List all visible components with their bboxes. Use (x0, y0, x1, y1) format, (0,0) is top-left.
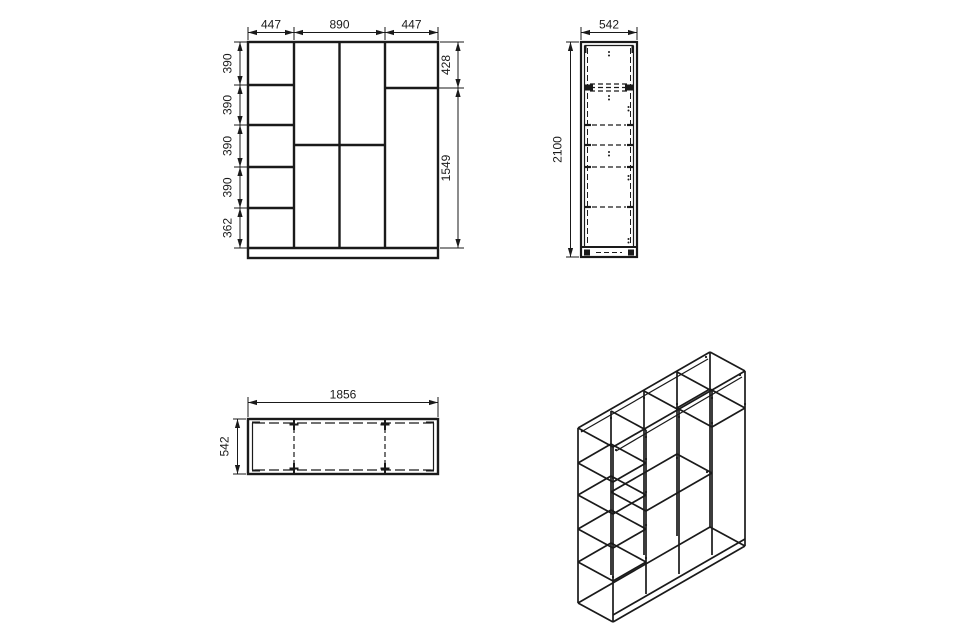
dim-depth: 542 (599, 18, 619, 32)
dim-shelf-1: 390 (221, 53, 235, 73)
side-outline (581, 42, 637, 257)
top-width-dimension: 1856 (248, 388, 438, 418)
side-hidden-shelf-band (590, 84, 628, 91)
top-hidden-edges (255, 423, 431, 470)
dim-shelf-4: 390 (221, 177, 235, 197)
top-outline (248, 419, 438, 474)
front-left-dimensions: 390 390 390 390 362 (221, 42, 249, 248)
side-hidden-edges (588, 48, 631, 244)
dim-height: 2100 (551, 136, 565, 163)
furniture-technical-drawing: 447 890 447 390 390 390 390 362 (0, 0, 960, 640)
dim-top-depth: 542 (218, 436, 232, 456)
dim-shelf-2: 390 (221, 95, 235, 115)
top-divider-left (290, 420, 299, 474)
side-height-dimension: 2100 (551, 42, 580, 257)
side-view: 542 2100 (551, 18, 638, 258)
dim-width-left: 447 (261, 18, 281, 32)
top-view-body (248, 419, 438, 474)
iso-middle-shelf (611, 454, 712, 511)
top-depth-dimension: 542 (218, 419, 247, 474)
dim-shelf-3: 390 (221, 136, 235, 156)
iso-left-column-shelves (578, 444, 646, 581)
isometric-view (578, 352, 746, 622)
iso-carcass-frame (578, 352, 745, 622)
iso-panel-thickness-edges (581, 359, 742, 451)
front-view: 447 890 447 390 390 390 390 362 (221, 18, 465, 259)
dim-top-section: 428 (439, 55, 453, 75)
dim-total-width: 1856 (330, 388, 357, 402)
side-fitting-marks (608, 51, 630, 244)
side-hidden-shelves (592, 125, 626, 207)
dim-shelf-5: 362 (221, 218, 235, 238)
side-view-body (581, 42, 637, 257)
side-depth-dimension: 542 (581, 18, 637, 41)
dim-width-middle: 890 (329, 18, 349, 32)
front-top-dimensions: 447 890 447 (248, 18, 438, 41)
dim-width-right: 447 (401, 18, 421, 32)
front-right-dimensions: 428 1549 (438, 42, 464, 248)
top-view: 1856 542 (218, 388, 439, 475)
front-view-body (248, 42, 438, 258)
dim-bottom-section: 1549 (439, 154, 453, 181)
front-outline (248, 42, 438, 258)
top-divider-right (381, 420, 390, 474)
